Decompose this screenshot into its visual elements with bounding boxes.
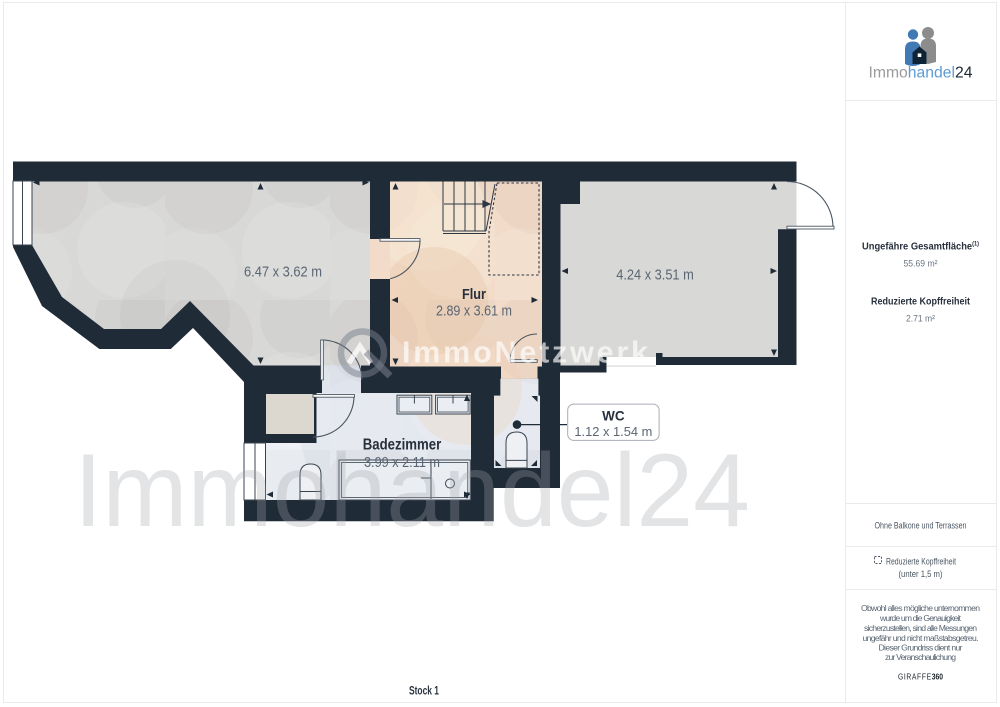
svg-text:6.47 x 3.62 m: 6.47 x 3.62 m	[244, 265, 322, 281]
svg-text:Immohandel24: Immohandel24	[869, 65, 973, 82]
svg-text:zur Veranschaulichung: zur Veranschaulichung	[885, 652, 956, 662]
svg-text:WC: WC	[602, 408, 625, 424]
svg-text:Stock 1: Stock 1	[409, 686, 439, 698]
svg-text:Reduzierte Kopffreiheit: Reduzierte Kopffreiheit	[871, 297, 971, 308]
svg-text:Flur: Flur	[462, 286, 486, 303]
svg-text:2.89 x 3.61 m: 2.89 x 3.61 m	[436, 304, 512, 320]
svg-text:ImmoNetzwerk: ImmoNetzwerk	[402, 336, 648, 370]
svg-text:(unter 1,5 m): (unter 1,5 m)	[899, 569, 943, 579]
svg-text:Ungefähre Gesamtfläche(1): Ungefähre Gesamtfläche(1)	[862, 242, 979, 253]
svg-text:Obwohl alles mögliche unternom: Obwohl alles mögliche unternommen	[861, 603, 980, 613]
svg-text:3.99 x 2.11 m: 3.99 x 2.11 m	[364, 455, 440, 471]
svg-text:GIRAFFE360: GIRAFFE360	[898, 672, 943, 682]
svg-text:2.71 m²: 2.71 m²	[906, 314, 935, 324]
svg-text:sicherzustellen, sind alle Mes: sicherzustellen, sind alle Messungen	[864, 623, 977, 633]
svg-text:wurde um die Genauigkeit: wurde um die Genauigkeit	[879, 613, 962, 623]
svg-text:55.69 m²: 55.69 m²	[904, 259, 938, 269]
svg-text:1.12 x 1.54 m: 1.12 x 1.54 m	[574, 424, 652, 439]
svg-text:4.24 x 3.51 m: 4.24 x 3.51 m	[616, 268, 694, 284]
svg-text:ungefähr und nicht maßstabsget: ungefähr und nicht maßstabsgetreu.	[863, 633, 979, 643]
svg-text:Dieser Grundriss dient nur: Dieser Grundriss dient nur	[879, 643, 963, 653]
svg-text:Ohne Balkone und Terrassen: Ohne Balkone und Terrassen	[875, 521, 967, 531]
svg-text:Badezimmer: Badezimmer	[363, 437, 442, 454]
svg-text:Reduzierte Kopffreiheit: Reduzierte Kopffreiheit	[886, 557, 956, 567]
